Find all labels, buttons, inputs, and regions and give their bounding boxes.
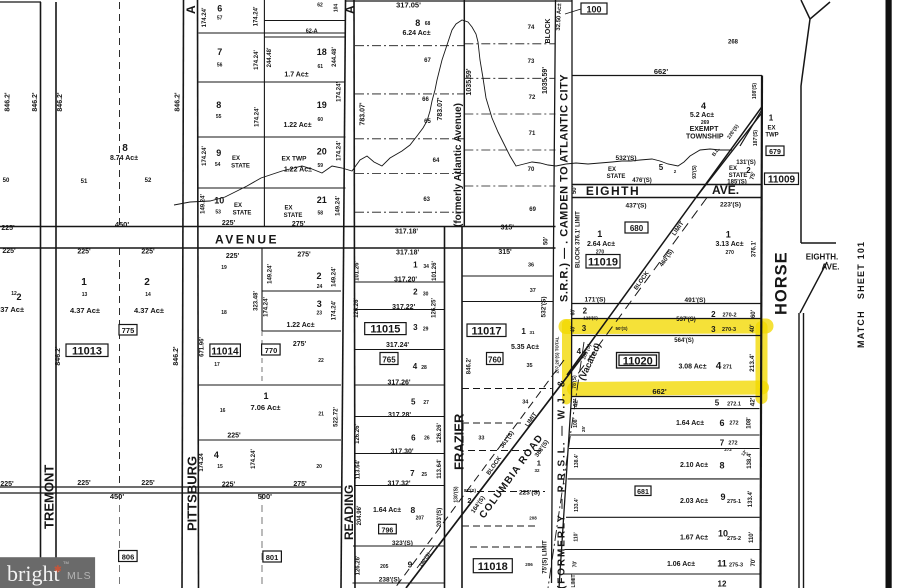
svg-text:70: 70 xyxy=(528,167,535,173)
svg-text:50': 50' xyxy=(544,236,550,245)
svg-text:272: 272 xyxy=(728,441,737,447)
svg-text:126.26': 126.26' xyxy=(356,555,362,575)
svg-text:34: 34 xyxy=(522,400,529,406)
svg-text:104: 104 xyxy=(334,4,340,13)
svg-text:11013: 11013 xyxy=(72,346,102,358)
svg-text:18: 18 xyxy=(317,47,327,57)
svg-text:16: 16 xyxy=(220,408,226,414)
svg-text:64: 64 xyxy=(433,158,440,164)
svg-text:225': 225' xyxy=(1,225,15,232)
svg-text:19: 19 xyxy=(221,265,227,271)
svg-text:846.2': 846.2' xyxy=(467,357,473,374)
svg-text:174.24': 174.24' xyxy=(251,449,257,469)
svg-text:522.72': 522.72' xyxy=(333,407,339,427)
svg-text:STATE: STATE xyxy=(231,164,250,170)
svg-text:126.26': 126.26' xyxy=(354,298,360,318)
svg-text:3.13 Ac±: 3.13 Ac± xyxy=(715,241,743,248)
svg-text:63: 63 xyxy=(423,197,430,203)
svg-text:11009: 11009 xyxy=(768,175,796,186)
svg-text:133.4': 133.4' xyxy=(748,490,754,507)
svg-text:2.64 Ac±: 2.64 Ac± xyxy=(587,241,615,248)
svg-text:437'(S): 437'(S) xyxy=(625,203,646,210)
svg-text:110': 110' xyxy=(749,531,755,543)
svg-text:110': 110' xyxy=(574,532,580,541)
svg-text:174.24: 174.24 xyxy=(199,453,205,472)
svg-text:3.08 Ac±: 3.08 Ac± xyxy=(678,364,706,371)
svg-text:101.26': 101.26' xyxy=(355,261,361,281)
svg-text:EX: EX xyxy=(608,167,616,173)
svg-text:30: 30 xyxy=(423,292,429,298)
svg-text:1: 1 xyxy=(597,229,602,239)
svg-text:2: 2 xyxy=(16,292,21,302)
svg-text:34: 34 xyxy=(423,264,429,270)
svg-text:238'(S): 238'(S) xyxy=(379,577,400,584)
svg-text:171'(S): 171'(S) xyxy=(584,297,605,304)
svg-text:225': 225' xyxy=(2,248,16,255)
svg-text:✱: ✱ xyxy=(54,564,62,574)
svg-text:17: 17 xyxy=(214,362,220,368)
svg-text:174.24': 174.24' xyxy=(332,300,338,320)
svg-text:491'(S): 491'(S) xyxy=(684,297,705,304)
svg-text:69: 69 xyxy=(529,207,536,213)
svg-text:8: 8 xyxy=(122,143,128,154)
svg-text:42': 42' xyxy=(573,398,580,407)
svg-text:174.24': 174.24' xyxy=(202,146,208,166)
svg-text:128'(S): 128'(S) xyxy=(583,316,598,321)
svg-text:174.24': 174.24' xyxy=(255,107,261,127)
svg-text:3: 3 xyxy=(413,323,418,332)
svg-text:11: 11 xyxy=(717,559,727,569)
svg-text:376.1': 376.1' xyxy=(752,240,758,257)
svg-text:2: 2 xyxy=(467,496,471,505)
svg-text:138.4': 138.4' xyxy=(574,454,580,468)
svg-text:70': 70' xyxy=(573,561,579,568)
svg-text:25': 25' xyxy=(581,426,586,432)
svg-text:244.48': 244.48' xyxy=(332,47,338,67)
svg-text:TOWNSHIP: TOWNSHIP xyxy=(686,134,724,141)
svg-text:101.26': 101.26' xyxy=(432,261,438,281)
svg-text:564'(S): 564'(S) xyxy=(674,338,693,344)
svg-text:126.26': 126.26' xyxy=(437,423,443,443)
svg-text:846.2': 846.2' xyxy=(32,92,39,112)
svg-text:20: 20 xyxy=(317,147,327,157)
svg-text:846.2': 846.2' xyxy=(57,92,64,112)
svg-text:317.18': 317.18' xyxy=(396,250,419,257)
svg-text:225': 225' xyxy=(222,482,236,489)
svg-text:796: 796 xyxy=(382,527,394,534)
svg-text:50': 50' xyxy=(572,185,578,194)
svg-text:54: 54 xyxy=(215,162,221,168)
svg-text:8: 8 xyxy=(411,505,416,515)
svg-text:1035.59': 1035.59' xyxy=(466,68,473,95)
svg-text:4: 4 xyxy=(214,450,219,460)
svg-text:STATE: STATE xyxy=(607,174,626,180)
svg-text:PITTSBURG: PITTSBURG xyxy=(185,456,200,531)
svg-text:READING: READING xyxy=(342,485,356,540)
svg-text:783.07': 783.07' xyxy=(360,102,367,125)
svg-text:174.24': 174.24' xyxy=(253,6,259,26)
svg-text:TREMONT: TREMONT xyxy=(42,465,57,529)
svg-text:108': 108' xyxy=(747,417,753,429)
svg-text:33: 33 xyxy=(478,436,484,442)
svg-text:22: 22 xyxy=(318,358,324,364)
svg-text:18: 18 xyxy=(221,310,227,316)
svg-text:32: 32 xyxy=(534,468,540,473)
svg-text:AVE.: AVE. xyxy=(821,263,839,272)
svg-text:7.06 Ac±: 7.06 Ac± xyxy=(250,403,280,412)
svg-text:EX: EX xyxy=(767,126,775,132)
svg-text:223'(S): 223'(S) xyxy=(720,202,741,209)
svg-text:14: 14 xyxy=(145,292,151,298)
svg-text:68: 68 xyxy=(425,21,431,27)
svg-text:1.64 Ac±: 1.64 Ac± xyxy=(676,420,704,427)
svg-text:846.2': 846.2' xyxy=(173,346,180,366)
svg-text:A: A xyxy=(343,5,357,14)
svg-text:149.24': 149.24' xyxy=(268,264,274,284)
svg-text:6: 6 xyxy=(719,418,724,428)
svg-text:TWP: TWP xyxy=(765,133,778,139)
svg-text:108'(S): 108'(S) xyxy=(752,83,758,100)
svg-text:225': 225' xyxy=(141,480,155,487)
svg-text:1: 1 xyxy=(263,391,268,401)
svg-text:9: 9 xyxy=(216,148,221,158)
svg-text:21: 21 xyxy=(317,195,327,205)
svg-text:9: 9 xyxy=(408,560,413,570)
svg-text:126.25': 126.25' xyxy=(432,298,438,318)
svg-text:149.24': 149.24' xyxy=(335,196,341,216)
svg-text:275-3: 275-3 xyxy=(729,563,743,569)
svg-text:66: 66 xyxy=(422,97,429,103)
svg-text:532'(S): 532'(S) xyxy=(541,296,548,317)
svg-text:271: 271 xyxy=(723,365,732,371)
svg-text:8: 8 xyxy=(216,100,221,110)
svg-text:205: 205 xyxy=(380,564,389,570)
svg-text:108': 108' xyxy=(573,418,579,428)
svg-text:25: 25 xyxy=(422,472,428,478)
svg-text:450': 450' xyxy=(115,220,130,229)
svg-text:130'(S): 130'(S) xyxy=(454,486,460,503)
svg-text:113.64': 113.64' xyxy=(437,459,443,479)
svg-text:223'(S): 223'(S) xyxy=(519,490,540,497)
svg-text:275': 275' xyxy=(293,341,307,348)
svg-text:6: 6 xyxy=(217,4,222,14)
svg-text:317.26': 317.26' xyxy=(387,380,410,387)
svg-text:57: 57 xyxy=(217,16,223,22)
svg-text:EX: EX xyxy=(232,156,240,162)
svg-text:53: 53 xyxy=(215,210,221,216)
svg-text:4.37 Ac±: 4.37 Ac± xyxy=(0,305,24,314)
svg-text:783.07': 783.07' xyxy=(437,97,444,120)
svg-text:STATE: STATE xyxy=(233,211,252,217)
svg-text:270-3: 270-3 xyxy=(722,327,736,333)
svg-text:1.22 Ac±: 1.22 Ac± xyxy=(283,122,311,129)
svg-text:40': 40' xyxy=(750,324,756,333)
svg-text:174.24': 174.24' xyxy=(336,141,342,161)
svg-text:500': 500' xyxy=(258,492,273,501)
svg-text:1: 1 xyxy=(726,230,731,240)
svg-text:bright: bright xyxy=(7,561,60,586)
svg-text:244.48': 244.48' xyxy=(267,47,273,67)
svg-text:225': 225' xyxy=(0,481,14,488)
svg-text:671.96': 671.96' xyxy=(200,337,206,357)
svg-text:1.06 Ac±: 1.06 Ac± xyxy=(667,561,695,568)
svg-text:1.22 Ac±: 1.22 Ac± xyxy=(284,167,312,174)
svg-text:26: 26 xyxy=(424,436,430,442)
svg-text:STATE: STATE xyxy=(284,213,303,219)
svg-text:207: 207 xyxy=(416,516,425,522)
svg-text:662': 662' xyxy=(652,387,667,396)
svg-text:174.24': 174.24' xyxy=(202,7,208,27)
svg-text:FRAZIER: FRAZIER xyxy=(452,413,467,470)
svg-text:268: 268 xyxy=(728,40,739,46)
svg-text:5: 5 xyxy=(659,163,664,172)
svg-text:806: 806 xyxy=(122,553,135,562)
svg-text:15: 15 xyxy=(217,464,223,470)
svg-text:5.2 Ac±: 5.2 Ac± xyxy=(690,112,714,119)
svg-text:6: 6 xyxy=(411,434,416,443)
svg-text:317.22': 317.22' xyxy=(392,304,415,311)
svg-text:56: 56 xyxy=(217,63,223,69)
svg-text:9: 9 xyxy=(720,492,725,502)
svg-text:5: 5 xyxy=(411,398,416,407)
svg-text:1035.59': 1035.59' xyxy=(542,67,549,94)
svg-text:67: 67 xyxy=(424,58,431,64)
svg-text:STATE: STATE xyxy=(729,173,748,179)
svg-text:7: 7 xyxy=(217,47,222,57)
svg-text:113.64': 113.64' xyxy=(356,459,362,479)
svg-text:EX TWP: EX TWP xyxy=(282,156,308,163)
svg-text:5.35 Ac±: 5.35 Ac± xyxy=(511,344,539,351)
svg-text:A: A xyxy=(184,5,198,14)
svg-text:36: 36 xyxy=(528,263,534,269)
svg-text:71: 71 xyxy=(529,131,536,137)
svg-text:450': 450' xyxy=(110,492,125,501)
svg-text:72: 72 xyxy=(529,95,536,101)
svg-text:10: 10 xyxy=(214,196,224,206)
svg-text:23: 23 xyxy=(317,311,323,317)
svg-text:2: 2 xyxy=(711,310,716,319)
svg-text:206: 206 xyxy=(525,562,533,567)
svg-text:225': 225' xyxy=(141,249,155,256)
svg-text:8.74 Ac±: 8.74 Ac± xyxy=(110,155,138,162)
svg-text:40': 40' xyxy=(571,326,577,333)
svg-text:EX: EX xyxy=(729,166,737,172)
svg-text:4: 4 xyxy=(577,347,582,356)
svg-text:4.37 Ac±: 4.37 Ac± xyxy=(134,306,164,315)
svg-text:2: 2 xyxy=(316,271,321,281)
svg-text:8: 8 xyxy=(719,461,724,471)
svg-text:133.4': 133.4' xyxy=(574,498,580,512)
svg-text:11019: 11019 xyxy=(588,257,618,269)
svg-text:37: 37 xyxy=(530,288,536,294)
svg-text:272: 272 xyxy=(724,447,732,452)
svg-text:MLS: MLS xyxy=(67,570,92,582)
svg-text:20: 20 xyxy=(316,464,322,470)
svg-text:60': 60' xyxy=(751,309,757,318)
svg-text:174.24': 174.24' xyxy=(264,297,270,317)
svg-text:846.2': 846.2' xyxy=(175,92,182,112)
svg-text:3: 3 xyxy=(711,325,716,334)
svg-text:S.R.R.) — . CAMDEN TO ATLANTIC: S.R.R.) — . CAMDEN TO ATLANTIC CITY xyxy=(559,74,571,302)
svg-text:59: 59 xyxy=(318,163,324,169)
svg-text:537'(S): 537'(S) xyxy=(676,317,695,323)
svg-text:315': 315' xyxy=(501,225,515,232)
svg-text:323.48': 323.48' xyxy=(254,291,260,311)
svg-text:EIGHTH: EIGHTH xyxy=(586,184,640,198)
svg-text:3: 3 xyxy=(582,324,587,333)
svg-text:74: 74 xyxy=(528,25,535,31)
svg-text:187'(S): 187'(S) xyxy=(753,130,759,147)
svg-text:532'(S): 532'(S) xyxy=(615,155,636,162)
svg-text:1: 1 xyxy=(81,277,87,288)
svg-text:662': 662' xyxy=(654,67,669,76)
svg-text:100: 100 xyxy=(586,5,601,15)
svg-text:50: 50 xyxy=(3,178,10,184)
svg-text:(formerly Atlantic Avenue): (formerly Atlantic Avenue) xyxy=(453,103,464,227)
svg-text:(FORMERLY — P.R.S.L. — W.J. &: (FORMERLY — P.R.S.L. — W.J. & xyxy=(557,378,568,588)
svg-text:LIMIT: LIMIT xyxy=(571,574,577,587)
svg-text:7: 7 xyxy=(410,469,415,478)
svg-text:61: 61 xyxy=(318,64,324,70)
svg-text:2: 2 xyxy=(144,277,150,288)
svg-text:1: 1 xyxy=(769,114,774,123)
svg-text:51: 51 xyxy=(81,179,88,185)
svg-text:35: 35 xyxy=(526,363,532,369)
svg-text:272.1: 272.1 xyxy=(727,402,741,408)
svg-text:EX: EX xyxy=(234,203,242,209)
svg-text:317.18': 317.18' xyxy=(395,229,418,236)
svg-text:765: 765 xyxy=(382,356,396,365)
svg-text:5: 5 xyxy=(715,399,720,408)
svg-text:846.2': 846.2' xyxy=(5,92,12,112)
svg-text:1.64 Ac±: 1.64 Ac± xyxy=(373,507,401,514)
svg-text:27: 27 xyxy=(423,400,429,406)
svg-text:2.10 Ac±: 2.10 Ac± xyxy=(680,462,708,469)
svg-text:4: 4 xyxy=(413,362,418,371)
svg-text:52: 52 xyxy=(145,178,152,184)
svg-text:225': 225' xyxy=(227,433,241,440)
svg-text:138.4': 138.4' xyxy=(747,452,753,469)
svg-text:11014: 11014 xyxy=(211,347,239,358)
svg-text:317.24': 317.24' xyxy=(386,342,409,349)
svg-text:1: 1 xyxy=(537,459,541,468)
svg-text:149.24': 149.24' xyxy=(332,267,338,287)
svg-text:31: 31 xyxy=(529,330,535,335)
svg-text:225': 225' xyxy=(77,249,91,256)
svg-text:203'(S): 203'(S) xyxy=(437,508,443,527)
svg-text:323'(S): 323'(S) xyxy=(392,540,413,547)
svg-text:225': 225' xyxy=(226,253,240,260)
svg-text:11017: 11017 xyxy=(472,326,502,338)
svg-text:28: 28 xyxy=(421,365,427,371)
svg-text:58: 58 xyxy=(318,211,324,217)
svg-text:2: 2 xyxy=(583,307,588,316)
svg-text:149.24': 149.24' xyxy=(201,194,207,214)
svg-text:21: 21 xyxy=(318,412,324,418)
svg-text:50'(S): 50'(S) xyxy=(615,326,628,331)
svg-text:1.67 Ac±: 1.67 Ac± xyxy=(680,535,708,542)
svg-text:EIGHTH.: EIGHTH. xyxy=(806,253,838,262)
svg-text:70': 70' xyxy=(751,558,757,567)
svg-text:770: 770 xyxy=(265,346,278,355)
svg-text:275-2: 275-2 xyxy=(727,536,741,542)
svg-text:846.2': 846.2' xyxy=(55,346,62,366)
svg-text:AVENUE: AVENUE xyxy=(215,233,279,247)
svg-text:679: 679 xyxy=(769,149,781,156)
svg-text:AVE.: AVE. xyxy=(712,183,739,197)
svg-text:680: 680 xyxy=(630,224,644,233)
svg-text:42': 42' xyxy=(750,397,757,406)
svg-text:87'(S): 87'(S) xyxy=(464,488,477,493)
svg-text:225': 225' xyxy=(222,220,236,227)
svg-text:BLOCK: BLOCK xyxy=(545,19,552,44)
svg-text:208: 208 xyxy=(529,516,537,521)
svg-text:24: 24 xyxy=(317,284,323,290)
svg-text:4: 4 xyxy=(701,101,706,111)
svg-text:174.24': 174.24' xyxy=(336,82,342,102)
svg-text:801: 801 xyxy=(266,553,279,562)
svg-text:TM: TM xyxy=(63,560,69,565)
svg-text:55: 55 xyxy=(216,114,222,120)
svg-text:11018: 11018 xyxy=(478,561,508,573)
svg-text:78'(S): 78'(S) xyxy=(572,375,578,389)
svg-text:EXEMPT: EXEMPT xyxy=(690,126,720,133)
svg-text:93'(S): 93'(S) xyxy=(692,165,698,179)
svg-text:270-2: 270-2 xyxy=(722,313,736,319)
svg-text:EX: EX xyxy=(284,206,292,212)
svg-text:1.22 Ac±: 1.22 Ac± xyxy=(286,322,314,329)
svg-text:775: 775 xyxy=(122,326,135,335)
svg-text:126.26': 126.26' xyxy=(355,424,361,444)
svg-text:8: 8 xyxy=(415,18,420,28)
svg-text:3: 3 xyxy=(317,299,322,309)
svg-text:317.28': 317.28' xyxy=(388,412,411,419)
svg-text:HORSE: HORSE xyxy=(773,251,791,315)
svg-text:12: 12 xyxy=(718,580,727,588)
svg-text:272: 272 xyxy=(729,421,738,427)
svg-text:13: 13 xyxy=(82,292,88,298)
svg-text:60': 60' xyxy=(571,309,577,316)
svg-text:62-A: 62-A xyxy=(306,29,318,35)
svg-text:315': 315' xyxy=(498,249,512,256)
svg-text:174.24': 174.24' xyxy=(254,50,260,70)
svg-text:1.7 Ac±: 1.7 Ac± xyxy=(284,72,308,79)
svg-text:204.96': 204.96' xyxy=(357,505,363,525)
svg-text:317.05': 317.05' xyxy=(396,1,421,10)
svg-text:2: 2 xyxy=(413,288,418,297)
svg-text:62: 62 xyxy=(317,3,323,9)
svg-text:MATCH SHEET 101: MATCH SHEET 101 xyxy=(856,241,866,348)
svg-text:4: 4 xyxy=(716,361,722,372)
svg-text:6.24 Ac±: 6.24 Ac± xyxy=(402,30,430,37)
svg-text:760: 760 xyxy=(488,356,502,365)
svg-text:317.32': 317.32' xyxy=(387,481,410,488)
svg-text:4.37 Ac±: 4.37 Ac± xyxy=(70,306,100,315)
svg-text:12: 12 xyxy=(11,291,17,297)
svg-text:65: 65 xyxy=(424,119,431,125)
svg-text:213.4': 213.4' xyxy=(749,354,756,372)
svg-text:275': 275' xyxy=(297,252,311,259)
svg-text:681: 681 xyxy=(637,489,649,496)
svg-text:19: 19 xyxy=(317,100,327,110)
svg-text:BLOCK 376.1' LIMIT: BLOCK 376.1' LIMIT xyxy=(576,211,582,268)
svg-text:73: 73 xyxy=(528,59,535,65)
svg-text:317.20': 317.20' xyxy=(394,277,417,284)
svg-text:60: 60 xyxy=(318,117,324,123)
svg-text:2.03 Ac±: 2.03 Ac± xyxy=(680,498,708,505)
svg-text:11015: 11015 xyxy=(370,324,400,336)
svg-text:317.30': 317.30' xyxy=(390,449,413,456)
